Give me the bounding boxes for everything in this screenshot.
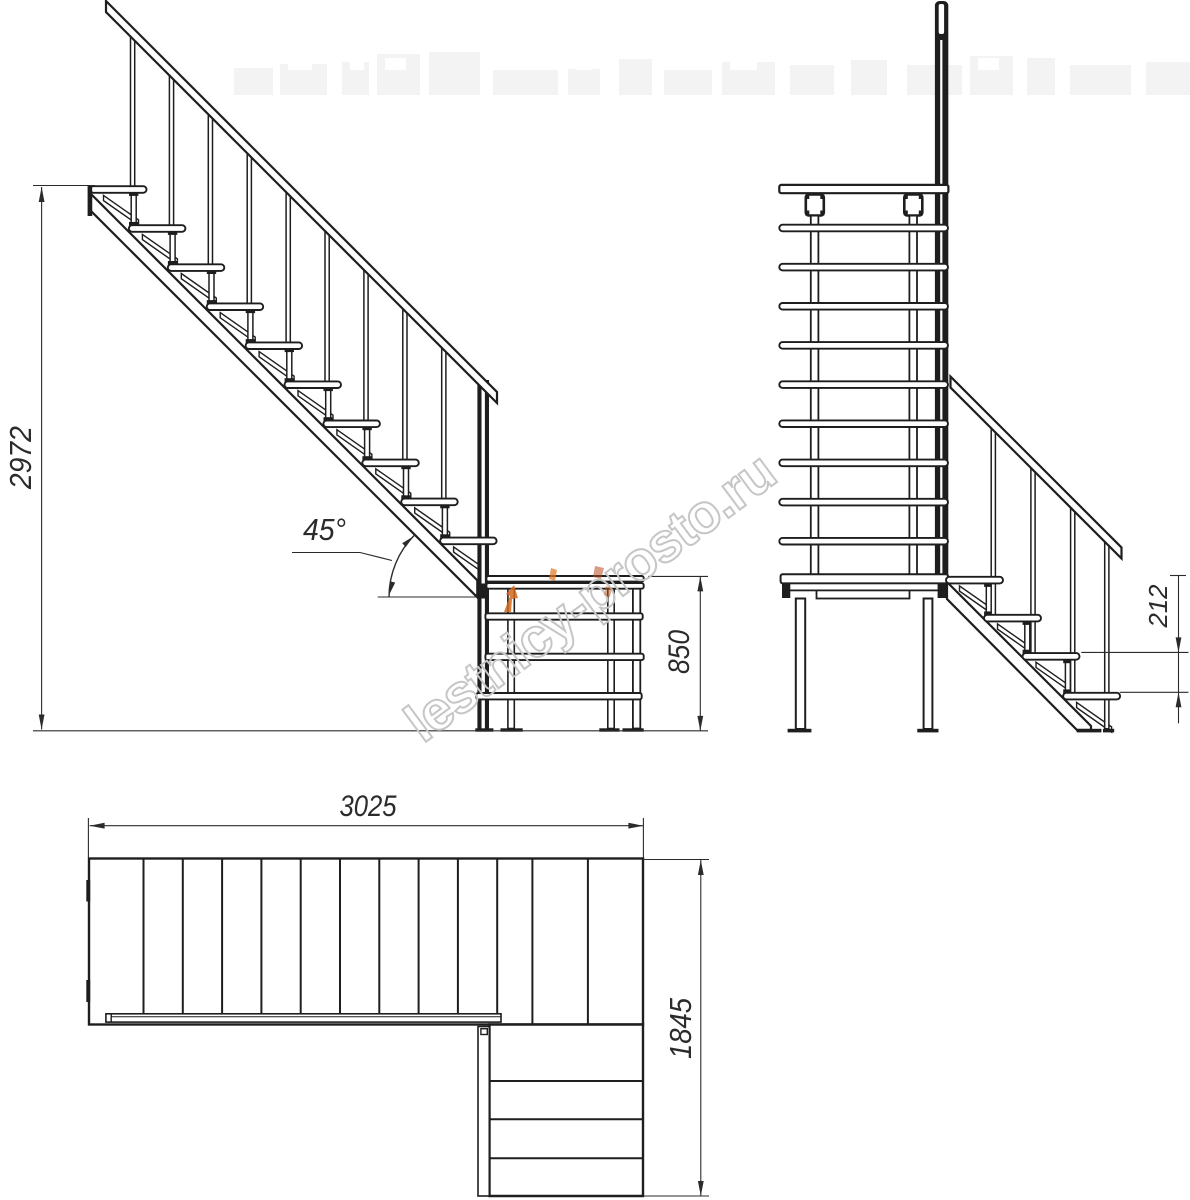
svg-text:1845: 1845 xyxy=(663,997,698,1059)
svg-text:850: 850 xyxy=(663,630,696,674)
svg-text:45°: 45° xyxy=(303,512,346,547)
svg-text:3025: 3025 xyxy=(340,790,397,823)
svg-text:212: 212 xyxy=(1143,584,1173,629)
svg-text:2972: 2972 xyxy=(3,426,38,490)
